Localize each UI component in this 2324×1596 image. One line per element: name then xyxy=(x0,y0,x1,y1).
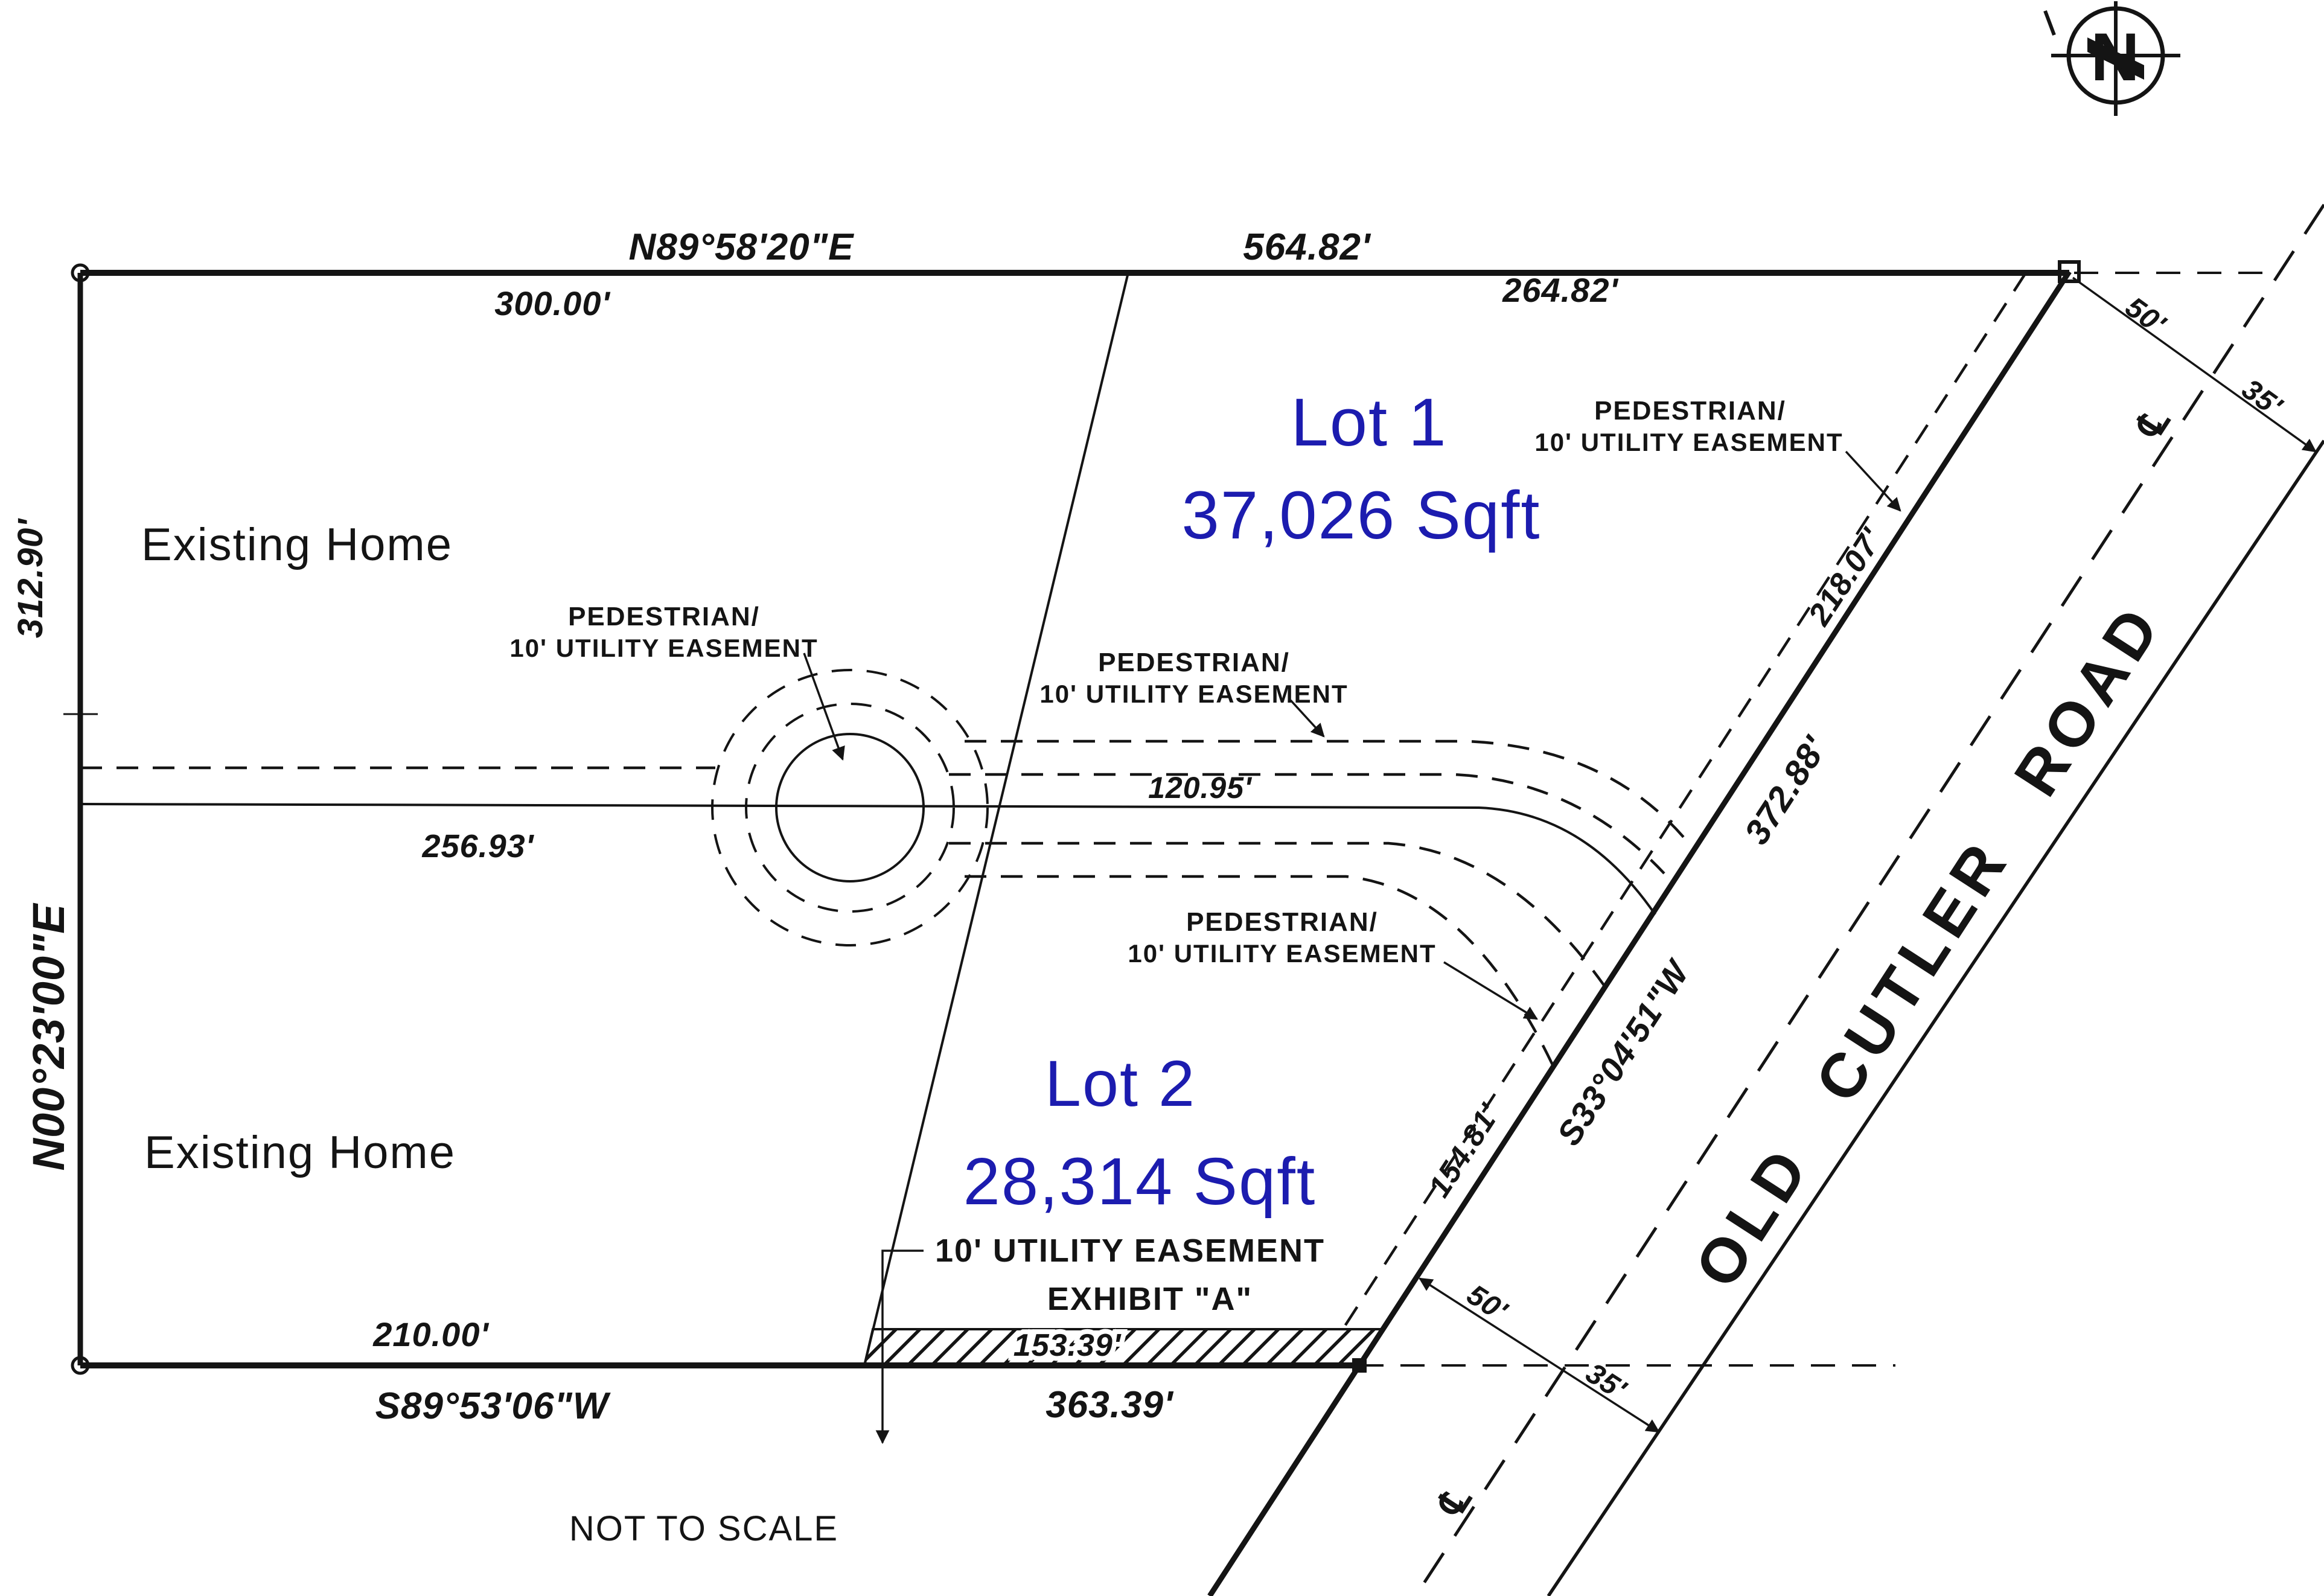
west-bearing-label: N00°23'00"E xyxy=(24,902,74,1171)
west-upper-distance-label: 312.90' xyxy=(11,518,50,638)
south-utility-easement-label: 10' UTILITY EASEMENT xyxy=(935,1233,1325,1269)
middle-division-line xyxy=(80,804,1655,915)
north-total-label: 564.82' xyxy=(1243,226,1371,268)
north-arrow-flick xyxy=(2045,11,2054,35)
road-lines xyxy=(1339,205,2324,1596)
centerline-symbol-bottom: ℄ xyxy=(1428,1478,1480,1525)
pedestrian-label-line1: PEDESTRIAN/ xyxy=(1098,648,1290,677)
existing-home-label-lower: Existing Home xyxy=(144,1127,456,1178)
leader-culdesac-easement xyxy=(804,653,843,759)
road-width-dimension-bottom xyxy=(1420,1278,1659,1432)
pedestrian-label-line1: PEDESTRIAN/ xyxy=(1186,907,1378,937)
existing-home-label-upper: Existing Home xyxy=(141,519,453,570)
plat-drawing: N N89°58'20"E 564.82' 300.00' 264.82' 31… xyxy=(0,0,2324,1596)
leader-corridor-easement-lower xyxy=(1444,962,1537,1019)
lot1-area: 37,026 Sqft xyxy=(1182,477,1541,553)
corridor-dashed-line-4 xyxy=(965,876,1553,1065)
cul-de-sac-pavement-circle xyxy=(776,734,924,881)
lot2-area: 28,314 Sqft xyxy=(963,1144,1317,1219)
north-left-segment-label: 300.00' xyxy=(494,284,610,322)
pedestrian-label-line2: 10' UTILITY EASEMENT xyxy=(509,634,818,662)
pedestrian-label-line2: 10' UTILITY EASEMENT xyxy=(1128,939,1436,968)
north-bearing-label: N89°58'20"E xyxy=(629,226,855,268)
south-total-label: 363.39' xyxy=(1045,1384,1174,1426)
south-bearing-label: S89°53'06"W xyxy=(375,1385,611,1427)
road-west-half-width-top: 50' xyxy=(2119,291,2171,341)
road-width-dimension-top xyxy=(2073,278,2316,452)
road-west-half-width-bottom: 50' xyxy=(1461,1278,1513,1328)
monument-square-se xyxy=(1352,1358,1367,1373)
north-arrow: N xyxy=(2045,1,2180,116)
cul-de-sac-easement-circle-outer xyxy=(712,670,988,945)
road-total-label: 372.88' xyxy=(1737,729,1835,852)
middle-distance-label: 256.93' xyxy=(421,828,534,864)
road-lower-segment-label: 154.81' xyxy=(1422,1097,1507,1204)
north-right-segment-label: 264.82' xyxy=(1502,271,1618,309)
pedestrian-easement-label-road: PEDESTRIAN/ 10' UTILITY EASEMENT xyxy=(1534,396,1843,456)
road-name-label: OLD CUTLER ROAD xyxy=(1682,591,2176,1300)
pedestrian-label-line2: 10' UTILITY EASEMENT xyxy=(1534,428,1843,456)
corridor-dashed-line-1 xyxy=(965,741,1684,838)
pedestrian-label-line1: PEDESTRIAN/ xyxy=(1594,396,1786,426)
lot-labels: Lot 1 37,026 Sqft Lot 2 28,314 Sqft Exis… xyxy=(141,385,1540,1219)
not-to-scale-note: NOT TO SCALE xyxy=(569,1509,838,1548)
exhibit-a-label: EXHIBIT "A" xyxy=(1047,1281,1253,1317)
road-bearing-label: S33°04'51"W xyxy=(1550,953,1697,1152)
pedestrian-label-line2: 10' UTILITY EASEMENT xyxy=(1039,680,1348,708)
corridor-dashed-line-2 xyxy=(949,774,1664,873)
hatched-easement-strip xyxy=(864,1329,1384,1365)
lot2-name: Lot 2 xyxy=(1045,1047,1196,1120)
lot1-name: Lot 1 xyxy=(1291,385,1447,460)
drive-distance-label: 120.95' xyxy=(1148,771,1253,805)
pedestrian-easement-label-corridor-lower: PEDESTRIAN/ 10' UTILITY EASEMENT xyxy=(1128,907,1436,968)
pedestrian-easement-label-culdesac: PEDESTRIAN/ 10' UTILITY EASEMENT xyxy=(509,602,818,662)
south-easement-segment-label: 153.39' xyxy=(1014,1328,1122,1363)
pedestrian-label-line1: PEDESTRIAN/ xyxy=(568,602,760,631)
leader-road-easement xyxy=(1846,452,1900,511)
cul-de-sac-and-drive xyxy=(80,670,1684,1065)
road-east-half-width-top: 35' xyxy=(2236,373,2288,423)
pedestrian-easement-label-corridor-upper: PEDESTRIAN/ 10' UTILITY EASEMENT xyxy=(1039,648,1348,708)
south-left-segment-label: 210.00' xyxy=(372,1315,489,1353)
survey-plat-page: N N89°58'20"E 564.82' 300.00' 264.82' 31… xyxy=(0,0,2324,1596)
road-centerline-dashed xyxy=(1416,205,2324,1596)
